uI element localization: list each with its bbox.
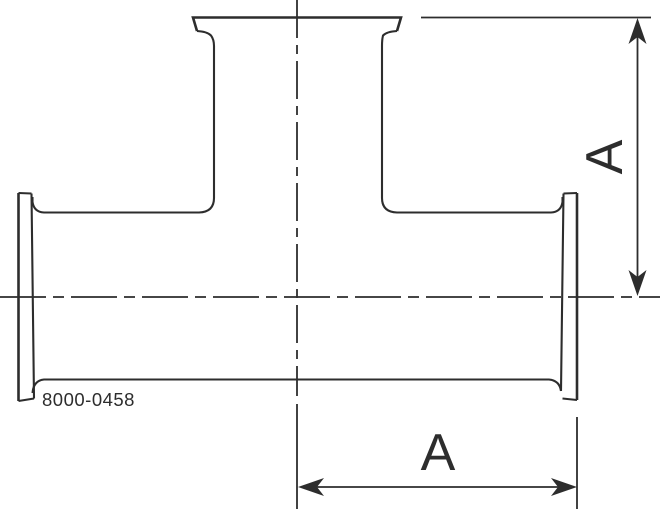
horizontal-dimension-label: A bbox=[421, 424, 456, 482]
tee-fitting-drawing: A A 8000-0458 bbox=[0, 0, 660, 509]
drawing-canvas: A A 8000-0458 bbox=[0, 0, 660, 509]
branch-right-profile bbox=[382, 31, 563, 213]
branch-left-profile bbox=[33, 31, 215, 213]
vertical-dimension: A bbox=[421, 18, 651, 297]
part-number-label: 8000-0458 bbox=[42, 389, 135, 410]
vertical-dimension-label: A bbox=[576, 139, 634, 174]
horizontal-dimension: A bbox=[297, 404, 577, 509]
